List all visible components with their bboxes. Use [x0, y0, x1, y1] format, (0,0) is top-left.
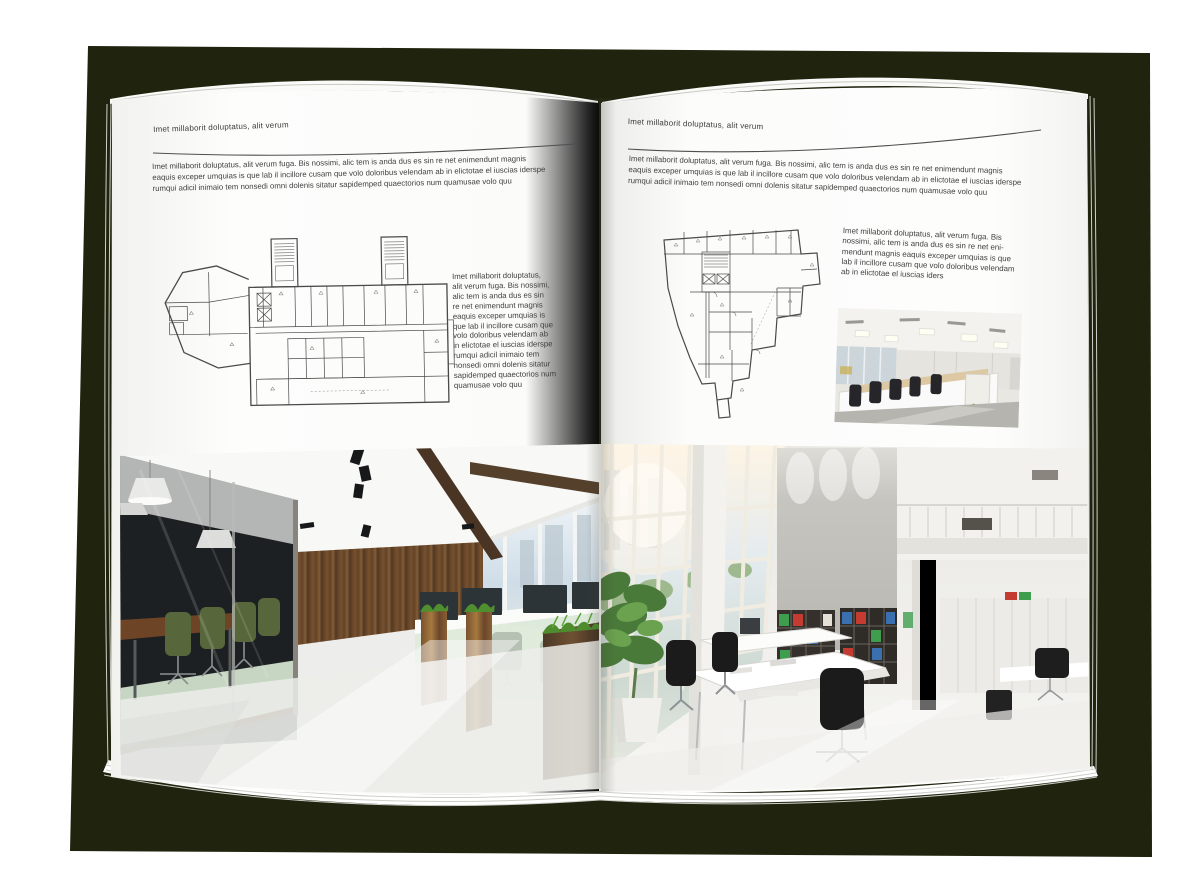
right-page-photo: [576, 435, 1093, 795]
right-page-small-photo: [834, 308, 1022, 430]
book-scene: [0, 0, 1200, 891]
left-page-side-column: Imet millaborit doluptatus, alit verum f…: [452, 270, 574, 391]
mezzanine-balcony: [897, 440, 1093, 560]
right-page-side-column: Imet millaborit doluptatus, alit verum f…: [841, 226, 1043, 286]
magazine-mockup: Imet millaborit doluptatus, alit verum I…: [0, 0, 1200, 891]
left-page-photo: [118, 440, 603, 795]
gutter-shadow: [586, 98, 616, 792]
